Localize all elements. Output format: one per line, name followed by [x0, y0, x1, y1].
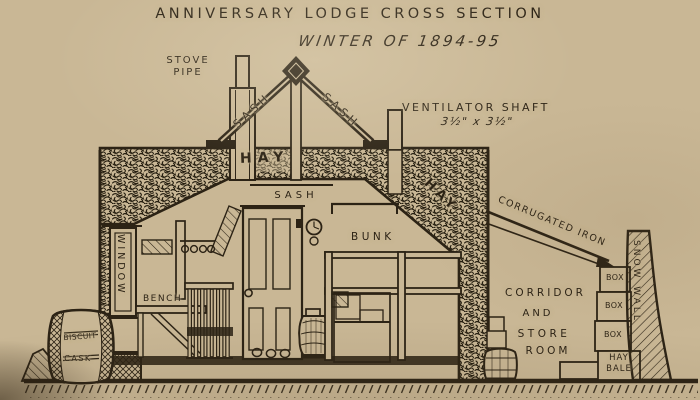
label-hay-bale-1: HAY	[598, 353, 640, 363]
bunk-post	[325, 252, 332, 360]
label-stove: STOVE	[158, 55, 218, 66]
slanted-board	[211, 206, 241, 256]
wall-clock	[307, 220, 322, 246]
label-and: AND	[498, 308, 578, 319]
label-room: ROOM	[502, 345, 594, 357]
label-corridor: CORRIDOR	[498, 287, 593, 299]
crate	[560, 362, 601, 379]
slat-rack	[185, 283, 233, 358]
label-hay-bale-2: BALE	[598, 364, 640, 374]
peg-ring	[191, 246, 198, 253]
label-ventilator-size: 3½" x 3½"	[440, 115, 515, 128]
title-line2: WINTER OF 1894-95	[269, 32, 532, 50]
bunk-top-rail	[325, 252, 461, 258]
biscuit-cask	[49, 310, 114, 384]
clock-pendulum	[310, 237, 318, 245]
ground-hatch	[24, 385, 698, 398]
label-box-1: BOX	[600, 273, 630, 282]
title-line1: ANNIVERSARY LODGE CROSS SECTION	[115, 6, 585, 22]
label-snow-wall: SNOW WALL	[631, 240, 641, 323]
arrow-head	[596, 256, 615, 267]
label-cask: CASK	[58, 354, 98, 363]
label-hay-roof: HAY	[240, 149, 290, 167]
label-bunk: BUNK	[351, 231, 395, 243]
hatched-shelf	[142, 240, 172, 254]
plank	[176, 221, 185, 299]
ground	[24, 381, 698, 398]
label-box-2: BOX	[597, 301, 631, 310]
peg-ring	[200, 246, 207, 253]
cross-section-diagram: ANNIVERSARY LODGE CROSS SECTION WINTER O…	[0, 0, 700, 400]
label-pipe: PIPE	[162, 67, 214, 78]
label-ventilator-shaft: VENTILATOR SHAFT	[402, 101, 550, 114]
sash-center-post	[291, 80, 301, 180]
bunk	[325, 252, 461, 362]
label-bench: BENCH	[143, 294, 182, 304]
label-box-3: BOX	[595, 330, 631, 339]
ventilator-shaft	[388, 110, 402, 194]
door	[240, 206, 305, 359]
shelf-rail	[331, 204, 399, 214]
label-store: STORE	[498, 328, 590, 340]
door-latch	[296, 219, 303, 228]
diagram-canvas	[0, 0, 700, 400]
label-window: WINDOW	[115, 234, 126, 296]
label-sash-ceiling: SASH	[266, 190, 326, 201]
bunk-post	[398, 252, 405, 360]
